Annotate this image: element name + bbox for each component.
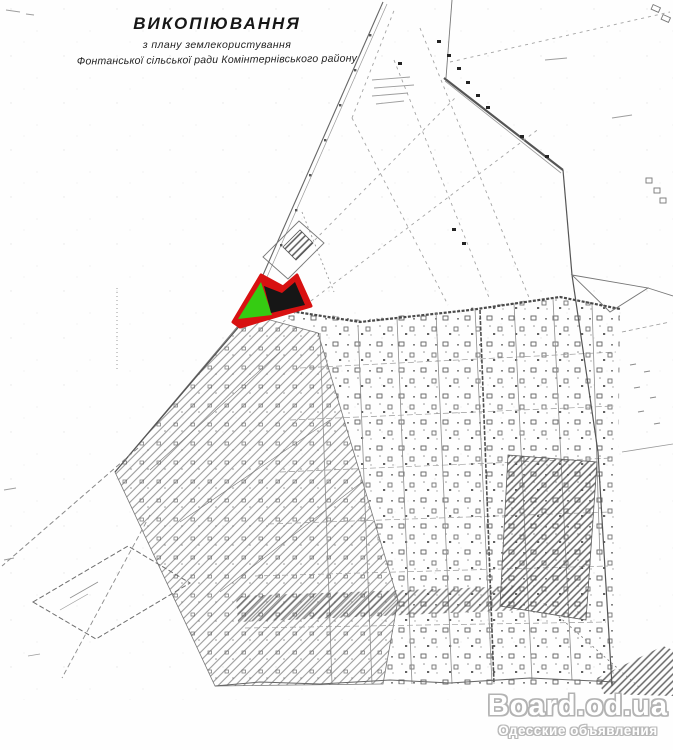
watermark: Board.od.ua Одесские объявления <box>488 692 668 738</box>
map-subtitle-2: Фонтанської сільської ради Комінтернівсь… <box>52 52 382 67</box>
map-subtitle-1: з плану землекористування <box>52 39 382 51</box>
map-title: ВИКОПІЮВАННЯ <box>52 14 382 34</box>
cadastral-map-canvas <box>0 0 673 750</box>
scanned-map-page: ВИКОПІЮВАННЯ з плану землекористування Ф… <box>0 0 673 750</box>
watermark-tagline: Одесские объявления <box>488 724 668 738</box>
watermark-site-name: Board.od.ua <box>488 692 668 721</box>
title-block: ВИКОПІЮВАННЯ з плану землекористування Ф… <box>52 14 382 66</box>
